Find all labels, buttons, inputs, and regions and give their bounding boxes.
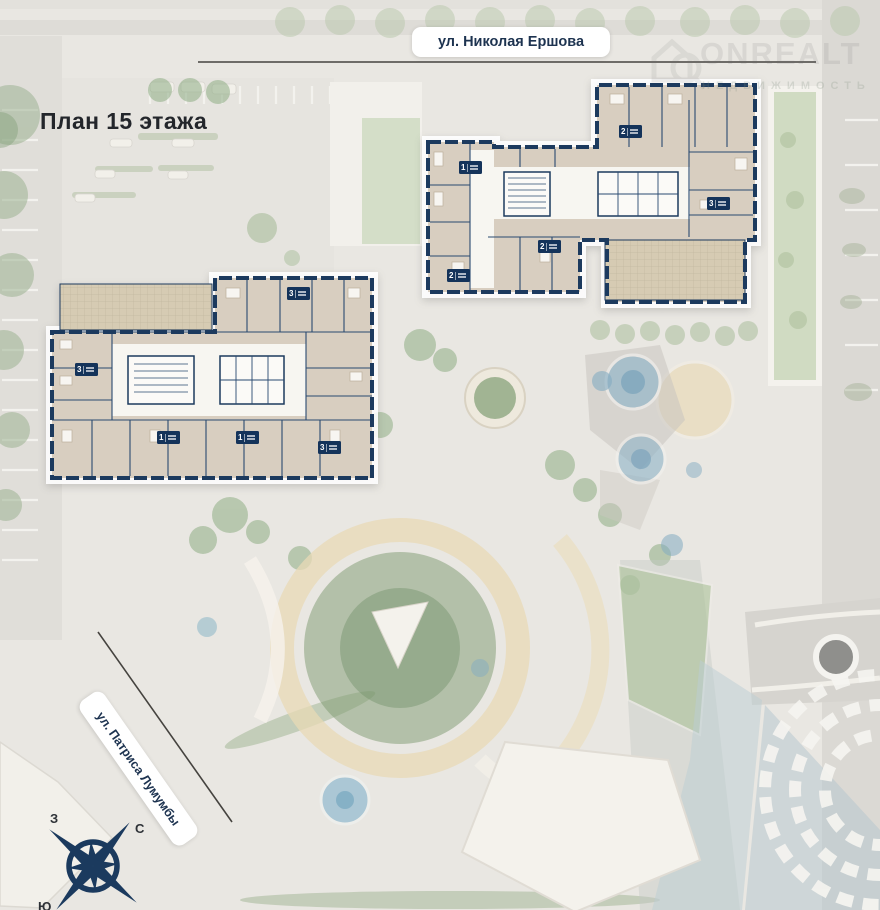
apartment-rooms-count: 3 bbox=[77, 366, 81, 374]
apartment-rooms-count: 1 bbox=[159, 434, 163, 442]
compass-south-label: Ю bbox=[38, 899, 51, 910]
apartment-rooms-count: 2 bbox=[449, 272, 453, 280]
street-label-nikolaya-ershova: ул. Николая Ершова bbox=[412, 27, 610, 57]
compass-west-label: З bbox=[50, 811, 58, 826]
apartment-rooms-count: 1 bbox=[461, 164, 465, 172]
apartment-badge[interactable]: 2 bbox=[447, 269, 470, 282]
badge-info-lines bbox=[458, 273, 466, 278]
terrace bbox=[60, 284, 212, 330]
page-title: План 15 этажа bbox=[40, 108, 207, 135]
badge-divider bbox=[627, 128, 628, 136]
apartment-badge[interactable]: 3 bbox=[318, 441, 341, 454]
apartment-rooms-count: 2 bbox=[540, 243, 544, 251]
apartment-rooms-count: 3 bbox=[320, 444, 324, 452]
badge-info-lines bbox=[86, 367, 94, 372]
apartment-badge[interactable]: 3 bbox=[287, 287, 310, 300]
floorplan-upper-building[interactable] bbox=[428, 85, 755, 302]
badge-info-lines bbox=[298, 291, 306, 296]
badge-info-lines bbox=[247, 435, 255, 440]
apartment-badge[interactable]: 1 bbox=[157, 431, 180, 444]
badge-divider bbox=[546, 243, 547, 251]
badge-info-lines bbox=[718, 201, 726, 206]
apartment-badge[interactable]: 1 bbox=[236, 431, 259, 444]
badge-info-lines bbox=[329, 445, 337, 450]
street-name: ул. Николая Ершова bbox=[438, 34, 584, 50]
apartment-badge[interactable]: 2 bbox=[538, 240, 561, 253]
compass-north-label: С bbox=[135, 821, 145, 836]
apartment-badge[interactable]: 1 bbox=[459, 161, 482, 174]
apartment-rooms-count: 3 bbox=[289, 290, 293, 298]
badge-divider bbox=[165, 434, 166, 442]
apartment-rooms-count: 1 bbox=[238, 434, 242, 442]
site-plan-page: 1 2 3 2 2 3 3 1 1 3 План 15 этажа ул. Ни… bbox=[0, 0, 880, 910]
badge-info-lines bbox=[549, 244, 557, 249]
compass-rose: З С Ю bbox=[18, 793, 168, 910]
apartment-rooms-count: 2 bbox=[621, 128, 625, 136]
apartment-badge[interactable]: 3 bbox=[75, 363, 98, 376]
badge-divider bbox=[83, 366, 84, 374]
badge-divider bbox=[295, 290, 296, 298]
apartment-badge[interactable]: 3 bbox=[707, 197, 730, 210]
badge-info-lines bbox=[168, 435, 176, 440]
badge-info-lines bbox=[470, 165, 478, 170]
terrace bbox=[605, 240, 745, 300]
badge-divider bbox=[467, 164, 468, 172]
badge-divider bbox=[715, 200, 716, 208]
badge-info-lines bbox=[630, 129, 638, 134]
apartment-rooms-count: 3 bbox=[709, 200, 713, 208]
badge-divider bbox=[455, 272, 456, 280]
badge-divider bbox=[244, 434, 245, 442]
badge-divider bbox=[326, 444, 327, 452]
apartment-badge[interactable]: 2 bbox=[619, 125, 642, 138]
